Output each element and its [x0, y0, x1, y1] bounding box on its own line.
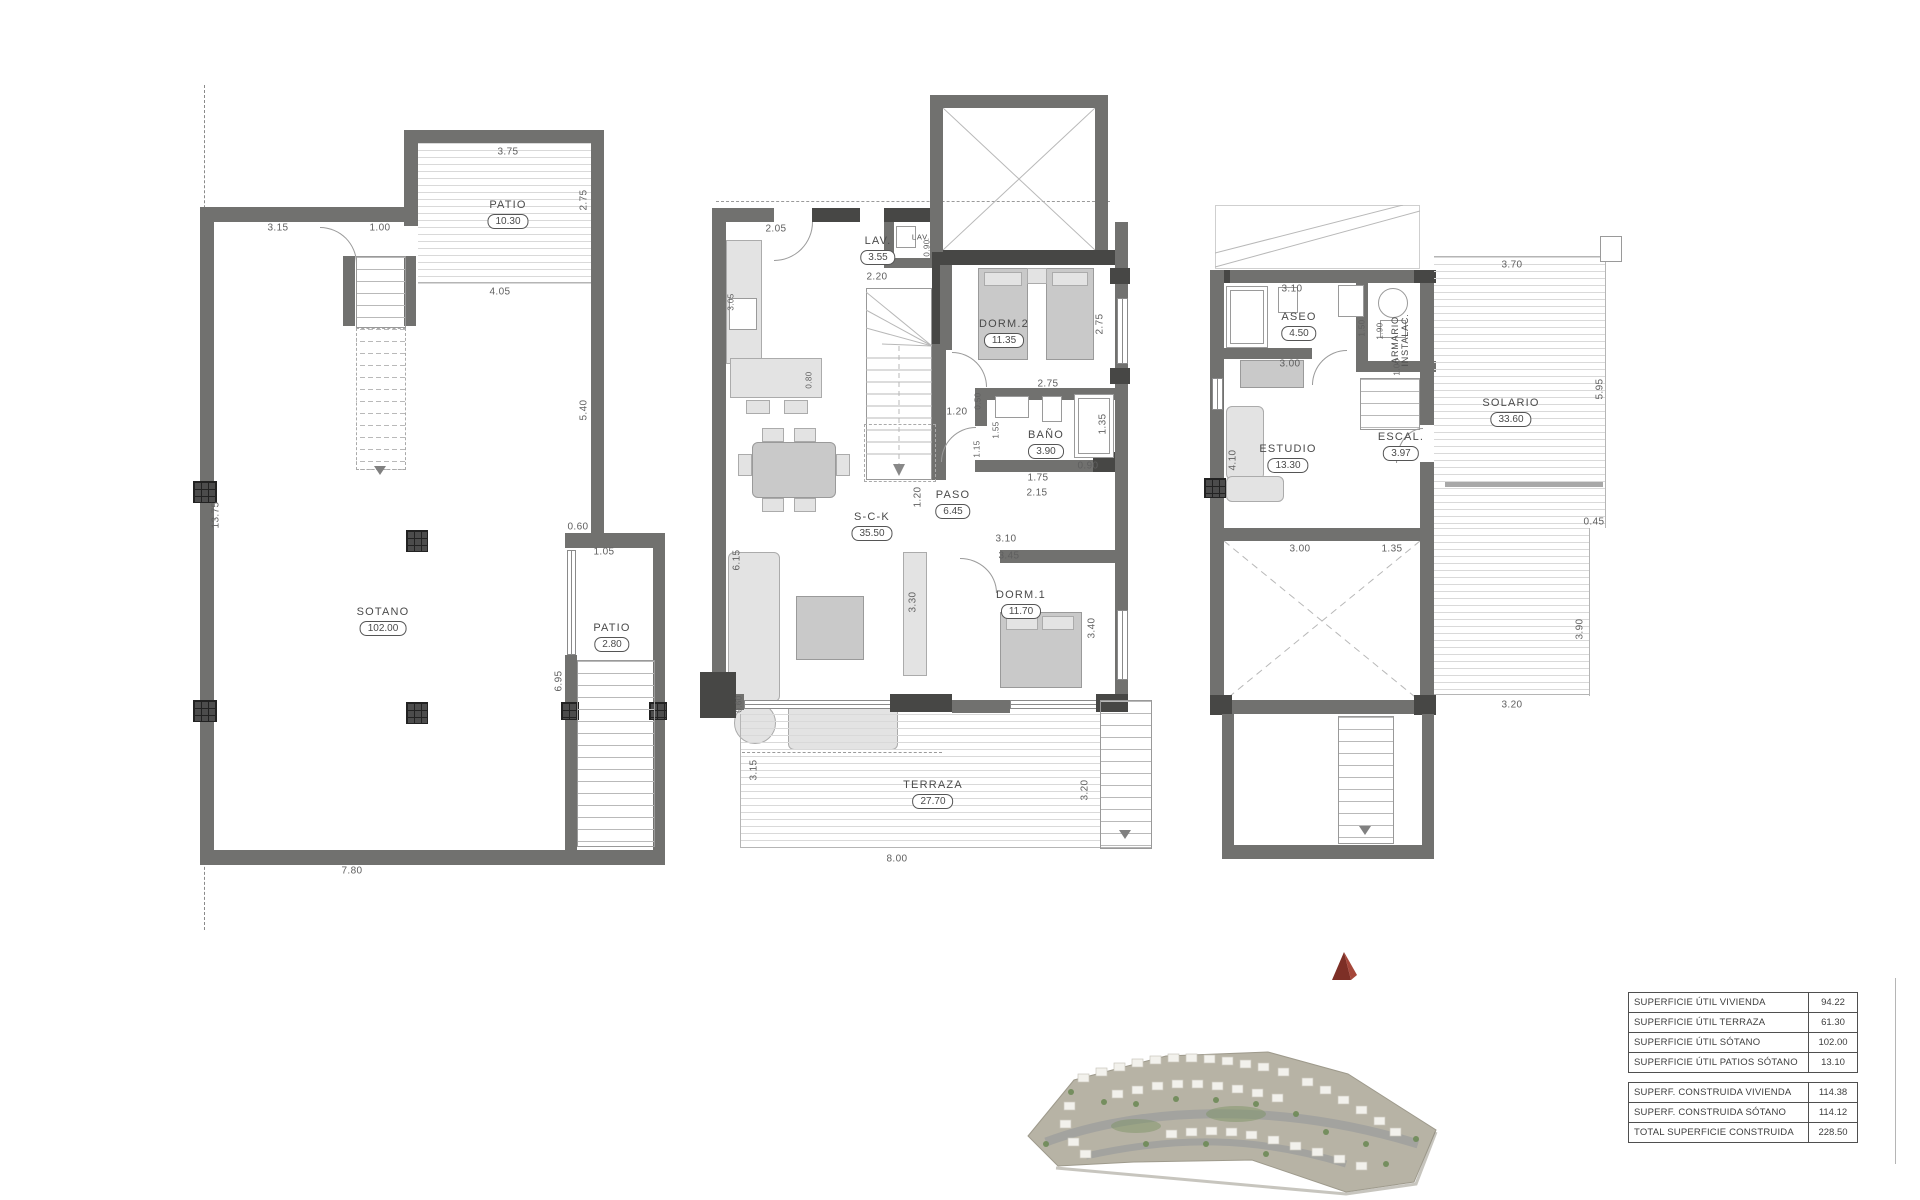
room-area-value: 102.00: [360, 621, 407, 636]
wall: [343, 256, 355, 326]
wall: [712, 208, 726, 708]
dim-label: 5.40: [579, 399, 590, 420]
wall: [812, 208, 860, 222]
dim-label: 6.95: [554, 670, 565, 691]
wall: [591, 130, 604, 290]
table-row-value: 114.12: [1808, 1103, 1857, 1122]
room-area-value: 6.45: [935, 504, 970, 519]
room-area-value: 27.70: [912, 794, 953, 809]
frame-line: [1895, 978, 1896, 1164]
stair-direction-arrow-icon: [1359, 826, 1371, 835]
room-name: PATIO: [487, 199, 528, 211]
dim-label: 3.30: [908, 591, 919, 612]
room-label-paso: PASO6.45: [935, 489, 970, 519]
wall: [930, 95, 943, 260]
chair: [738, 454, 752, 476]
wall: [700, 672, 736, 718]
table-row-label: TOTAL SUPERFICIE CONSTRUIDA: [1629, 1123, 1808, 1142]
exterior-stairs: [577, 660, 655, 847]
coffee-table: [796, 596, 864, 660]
wall: [565, 533, 665, 548]
room-area-value: 3.55: [860, 250, 895, 265]
location-marker-icon: [1324, 948, 1364, 984]
door-arc: [960, 558, 997, 593]
projection-dashed-line: [742, 752, 942, 753]
surface-table-group-construida: SUPERF. CONSTRUIDA VIVIENDA114.38 SUPERF…: [1628, 1082, 1858, 1143]
wall: [930, 95, 1108, 108]
bath-sink: [1338, 285, 1364, 317]
wall: [943, 250, 1128, 265]
room-name: PATIO: [593, 622, 630, 634]
dim-label: 1.20: [913, 486, 924, 507]
pillow: [984, 272, 1022, 286]
column: [193, 481, 217, 503]
deck-edge: [1434, 694, 1590, 695]
toilet: [1042, 396, 1062, 422]
room-label-sotano: SOTANO102.00: [357, 606, 410, 636]
wall: [1110, 268, 1130, 284]
dim-label: 3.75: [497, 147, 518, 158]
room-label-aseo: ASEO4.50: [1281, 311, 1316, 341]
table-row: SUPERF. CONSTRUIDA SÓTANO114.12: [1629, 1103, 1857, 1123]
stairs: [356, 256, 406, 328]
wall: [565, 655, 577, 865]
chair: [762, 428, 784, 442]
chair: [836, 454, 850, 476]
window: [1010, 700, 1100, 709]
room-area-value: 3.97: [1383, 446, 1418, 461]
table-row-label: SUPERFICIE ÚTIL SÓTANO: [1629, 1033, 1808, 1052]
door-arc: [941, 427, 976, 462]
window: [1117, 610, 1128, 680]
wall: [591, 288, 604, 538]
site-aerial-image: [1016, 1044, 1446, 1196]
dim-label: 3.40: [1087, 617, 1098, 638]
chair: [794, 498, 816, 512]
table-row-value: 114.38: [1808, 1083, 1857, 1102]
dim-label: 13.75: [211, 501, 222, 528]
wall: [1095, 95, 1108, 260]
room-name: ESCAL.: [1378, 431, 1424, 443]
room-label-dorm1: DORM.111.70: [996, 589, 1046, 619]
dim-label: 8.00: [886, 854, 907, 865]
dim-label: 2.05: [765, 224, 786, 235]
solarium-hatch: [1434, 257, 1606, 528]
stairs: [1360, 378, 1420, 430]
dim-label: 0.80: [805, 371, 814, 388]
room-area-value: 3.90: [1028, 444, 1063, 459]
surface-table-group-util: SUPERFICIE ÚTIL VIVIENDA94.22 SUPERFICIE…: [1628, 992, 1858, 1073]
room-name: DORM.2: [979, 318, 1029, 330]
window: [1212, 378, 1223, 410]
table-row: SUPERFICIE ÚTIL SÓTANO102.00: [1629, 1033, 1857, 1053]
exterior-stairs: [1100, 700, 1152, 849]
dim-label: 0.90: [923, 239, 932, 256]
chair: [794, 428, 816, 442]
room-area-value: 11.35: [984, 333, 1024, 348]
deck-edge: [1589, 528, 1590, 696]
wall: [952, 700, 1010, 713]
column: [406, 530, 428, 552]
sofa: [1226, 476, 1284, 502]
wall: [1222, 528, 1434, 541]
room-label-dorm2: DORM.211.35: [979, 318, 1029, 348]
exterior-stairs: [1338, 716, 1394, 844]
dim-label: 2.75: [579, 189, 590, 210]
deck-notch: [1600, 236, 1622, 262]
column: [406, 702, 428, 724]
table-row-value: 61.30: [1808, 1013, 1857, 1032]
door-arc: [1312, 350, 1347, 385]
dim-label: 2.75: [1095, 313, 1106, 334]
dim-label: 1.50: [1358, 319, 1367, 336]
dim-label: 1.15: [973, 440, 982, 457]
dim-label: 3.45: [998, 551, 1019, 562]
stair-direction-arrow-icon: [1119, 830, 1131, 839]
dim-label: 1.20: [946, 407, 967, 418]
dim-label: 3.20: [1501, 700, 1522, 711]
room-name: S-C-K: [851, 511, 892, 523]
room-label-terraza: TERRAZA27.70: [903, 779, 963, 809]
room-label-solario: SOLARIO33.60: [1482, 397, 1539, 427]
deck-edge: [1434, 256, 1606, 257]
dim-label: 1.75: [1027, 473, 1048, 484]
roof-slope-outline: [1215, 205, 1420, 269]
dim-label: 3.90: [1575, 618, 1586, 639]
room-name: BAÑO: [1028, 429, 1064, 441]
dim-label: 3.10: [995, 534, 1016, 545]
room-name: ASEO: [1281, 311, 1316, 323]
table-row-label: SUPERF. CONSTRUIDA VIVIENDA: [1629, 1083, 1808, 1102]
room-name: TERRAZA: [903, 779, 963, 791]
column: [193, 700, 217, 722]
room-label-patio-top: PATIO10.30: [487, 199, 528, 229]
dim-label: 6.15: [732, 549, 743, 570]
dim-label: 2.20: [866, 272, 887, 283]
table-row: SUPERFICIE ÚTIL VIVIENDA94.22: [1629, 993, 1857, 1013]
wall: [884, 208, 930, 222]
room-name: SOTANO: [357, 606, 410, 618]
dim-label: 0.60: [735, 695, 744, 712]
room-name: SOLARIO: [1482, 397, 1539, 409]
dim-label: 7.80: [341, 866, 362, 877]
wall: [1222, 348, 1312, 359]
dim-label: 3.15: [749, 759, 760, 780]
dim-label: 0.45: [1583, 517, 1604, 528]
table-row-value: 228.50: [1808, 1123, 1857, 1142]
stool: [784, 400, 808, 414]
room-label-lav: LAV.3.55: [860, 235, 895, 265]
stairs-dashed: [356, 328, 406, 470]
wall: [1210, 695, 1232, 715]
chair: [762, 498, 784, 512]
wardrobe: [903, 552, 927, 676]
stool: [746, 400, 770, 414]
room-name: DORM.1: [996, 589, 1046, 601]
table-row-label: SUPERFICIE ÚTIL TERRAZA: [1629, 1013, 1808, 1032]
floorplan-sheet: PATIO10.30 SOTANO102.00 PATIO2.80 3.75 2…: [0, 0, 1920, 1200]
room-name: ESTUDIO: [1259, 443, 1316, 455]
dim-label: 3.05: [727, 293, 736, 310]
room-area-value: 2.80: [594, 637, 629, 652]
door-arc: [320, 227, 357, 264]
dining-table: [752, 442, 836, 498]
dim-label: 1.35: [1098, 413, 1109, 434]
wall: [1422, 714, 1434, 854]
room-label-sck: S-C-K35.50: [851, 511, 892, 541]
dim-label: 0.90: [1077, 461, 1098, 472]
table-row-value: 13.10: [1808, 1053, 1857, 1072]
bath-sink: [995, 396, 1029, 418]
wall: [404, 130, 418, 226]
wall: [1222, 714, 1234, 854]
dim-label: 1.90: [1376, 322, 1385, 339]
room-label-patio-side: PATIO2.80: [593, 622, 630, 652]
wall: [890, 694, 952, 712]
dim-label: 3.15: [267, 223, 288, 234]
wall: [1414, 695, 1436, 715]
dim-label: 4.05: [489, 287, 510, 298]
double-height-void-cross: [1224, 541, 1420, 701]
dim-label: 3.70: [1501, 260, 1522, 271]
wall: [1110, 368, 1130, 384]
deck-divider: [1445, 482, 1603, 487]
room-name: INSTALAC.: [1400, 313, 1410, 366]
room-area-value: 33.60: [1490, 412, 1531, 427]
wall: [1222, 845, 1434, 859]
stair-projection-dashed: [864, 424, 936, 482]
wall: [1210, 700, 1436, 714]
nightstand: [1027, 268, 1047, 284]
table-row-label: SUPERFICIE ÚTIL VIVIENDA: [1629, 993, 1808, 1012]
table-row: SUPERFICIE ÚTIL TERRAZA61.30: [1629, 1013, 1857, 1033]
wall: [404, 130, 604, 143]
table-row: SUPERFICIE ÚTIL PATIOS SÓTANO13.10: [1629, 1053, 1857, 1072]
wall: [200, 850, 665, 865]
table-row-value: 102.00: [1808, 1033, 1857, 1052]
pillow: [1042, 616, 1074, 630]
table-row-value: 94.22: [1808, 993, 1857, 1012]
dim-label: 1.05: [593, 547, 614, 558]
window: [1117, 298, 1128, 364]
dim-label: 3.00: [1279, 359, 1300, 370]
room-label-estudio: ESTUDIO13.30: [1259, 443, 1316, 473]
shower: [1226, 286, 1268, 348]
dimension-line: [418, 282, 591, 283]
room-area-value: 11.70: [1001, 604, 1041, 619]
light-well-cross: [943, 108, 1095, 250]
room-area-value: 4.50: [1281, 326, 1316, 341]
dim-label: 5.95: [1595, 378, 1606, 399]
room-area-value: 35.50: [851, 526, 892, 541]
stair-direction-arrow-icon: [374, 466, 386, 475]
wall: [1210, 270, 1436, 283]
dim-label: 0.60: [567, 522, 588, 533]
room-area-value: 13.30: [1267, 458, 1308, 473]
table-row-label: SUPERFICIE ÚTIL PATIOS SÓTANO: [1629, 1053, 1808, 1072]
dim-label: 4.10: [1228, 449, 1239, 470]
surface-table: SUPERFICIE ÚTIL VIVIENDA94.22 SUPERFICIE…: [1628, 992, 1858, 1152]
room-area-value: 10.30: [487, 214, 528, 229]
wall: [1420, 462, 1434, 715]
dim-label: 0.50: [974, 392, 983, 409]
column: [1204, 478, 1226, 498]
window: [567, 550, 576, 655]
wall: [200, 207, 214, 865]
terrace-edge: [740, 847, 1152, 848]
room-label-escal: ESCAL.3.97: [1378, 431, 1424, 461]
room-name: PASO: [935, 489, 970, 501]
dim-label: 3.10: [1281, 284, 1302, 295]
table-row: SUPERF. CONSTRUIDA VIVIENDA114.38: [1629, 1083, 1857, 1103]
wall: [940, 265, 952, 350]
dim-label: 1.00: [1393, 358, 1402, 375]
wall: [1414, 270, 1436, 283]
room-label-bano: BAÑO3.90: [1028, 429, 1064, 459]
wall: [200, 207, 416, 222]
dim-label: 1.55: [992, 421, 1001, 438]
dim-label: 3.20: [1080, 779, 1091, 800]
room-name: LAV.: [860, 235, 895, 247]
dim-label: 1.00: [369, 223, 390, 234]
table-row-label: SUPERF. CONSTRUIDA SÓTANO: [1629, 1103, 1808, 1122]
terrace-edge: [740, 714, 741, 848]
table-row: TOTAL SUPERFICIE CONSTRUIDA228.50: [1629, 1123, 1857, 1142]
dim-label: 2.15: [1026, 488, 1047, 499]
wall: [1420, 283, 1434, 425]
pillow: [1052, 272, 1088, 286]
solarium-hatch: [1434, 528, 1590, 695]
dim-label: 2.75: [1037, 379, 1058, 390]
